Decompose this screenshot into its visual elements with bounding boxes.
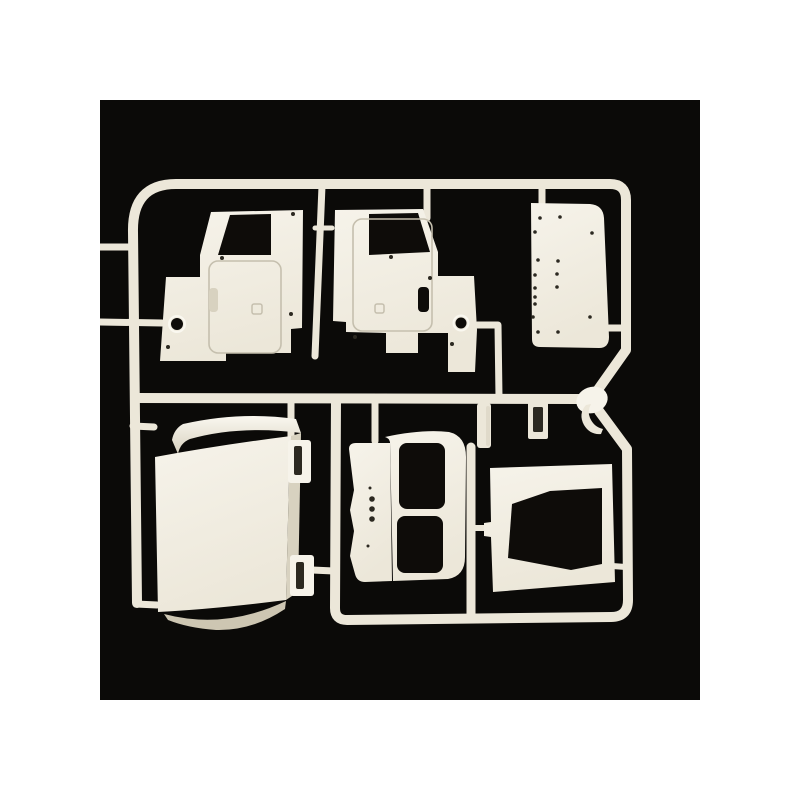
dot xyxy=(166,345,170,349)
roof-bracket-bottom-slot xyxy=(296,562,304,589)
cab-right-hole xyxy=(456,318,467,329)
gate-left-edge-lower xyxy=(100,322,162,323)
dot xyxy=(533,273,537,277)
dot xyxy=(367,545,370,548)
roof-bracket-top-slot xyxy=(294,446,302,475)
dot xyxy=(533,295,537,299)
cab-left-hole xyxy=(171,318,183,330)
small-bar-shade xyxy=(486,406,490,446)
dot xyxy=(588,315,592,319)
dot xyxy=(220,256,224,260)
dot xyxy=(536,258,540,262)
dot xyxy=(353,335,357,339)
dot xyxy=(556,259,560,263)
back-panel-body xyxy=(531,203,609,348)
small-frame-slot xyxy=(533,407,543,432)
dot xyxy=(291,212,295,216)
dot xyxy=(450,342,454,346)
dot xyxy=(555,285,559,289)
dot xyxy=(428,276,432,280)
dot xyxy=(369,496,375,502)
dot xyxy=(369,516,375,522)
dot xyxy=(558,215,562,219)
gate-roof-top-left xyxy=(133,426,154,427)
roof-main-face xyxy=(155,436,291,612)
dot xyxy=(538,216,542,220)
cab-right-handle-slot xyxy=(418,287,429,312)
dot xyxy=(536,330,540,334)
dot xyxy=(590,231,594,235)
dot xyxy=(389,255,393,259)
runner-middle-horizontal xyxy=(135,398,579,399)
dot xyxy=(533,302,537,306)
cab-left-pocket-slot xyxy=(209,288,218,312)
dot xyxy=(369,487,372,490)
rear-frame-window-lower xyxy=(397,516,443,573)
part-windshield-frame xyxy=(484,464,615,592)
dot xyxy=(369,506,375,512)
sill-strip-body xyxy=(349,443,392,582)
gate-roof-bottom-left xyxy=(136,604,157,605)
dot xyxy=(533,286,537,290)
gate-roof-bracket-bottom xyxy=(312,570,334,571)
product-photo xyxy=(100,100,700,700)
dot xyxy=(533,230,537,234)
dot xyxy=(289,312,293,316)
part-cab-back-panel xyxy=(531,203,609,348)
dot xyxy=(556,330,560,334)
dot xyxy=(531,315,535,319)
page xyxy=(0,0,800,800)
rear-frame-window-upper xyxy=(399,443,445,509)
dot xyxy=(555,272,559,276)
part-rear-window-frame xyxy=(385,431,466,581)
part-door-sill-strip xyxy=(349,443,392,582)
